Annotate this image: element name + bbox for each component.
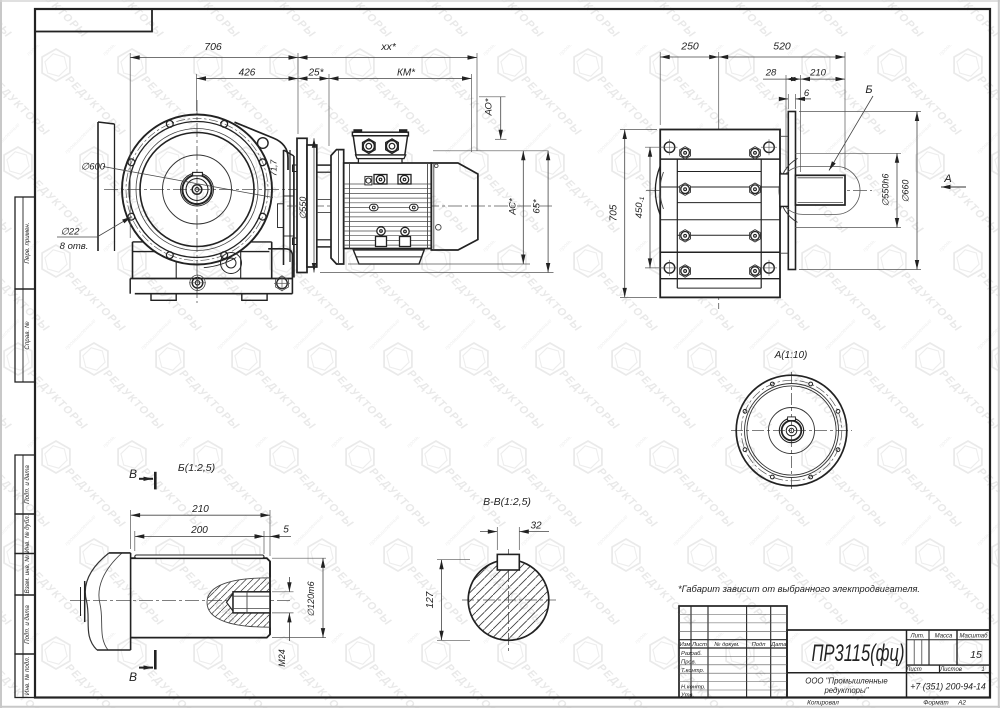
svg-text:Н.контр.: Н.контр.	[681, 685, 706, 691]
svg-text:В-В(1:2,5): В-В(1:2,5)	[483, 496, 531, 508]
svg-text:Формат: Формат	[923, 700, 949, 707]
svg-text:Перв. примен.: Перв. примен.	[24, 222, 31, 263]
svg-text:Инв. № дубл.: Инв. № дубл.	[24, 515, 31, 553]
svg-text:Изм: Изм	[680, 642, 691, 648]
svg-text:Взам. инв. №: Взам. инв. №	[24, 555, 31, 594]
svg-text:Лист: Лист	[691, 642, 707, 648]
svg-text:25*: 25*	[307, 68, 324, 79]
svg-text:Б(1:2,5): Б(1:2,5)	[178, 462, 215, 474]
svg-text:Лит.: Лит.	[909, 634, 924, 640]
svg-text:∅600: ∅600	[81, 162, 106, 173]
svg-text:Б: Б	[865, 84, 872, 96]
svg-text:∅550: ∅550	[298, 197, 308, 220]
svg-text:+7 (351) 200-94-14: +7 (351) 200-94-14	[910, 682, 986, 692]
svg-text:*Габарит зависит от выбранного: *Габарит зависит от выбранного электродв…	[678, 584, 920, 594]
svg-text:Инв. № подл.: Инв. № подл.	[24, 657, 31, 695]
svg-text:КМ*: КМ*	[397, 68, 416, 79]
svg-text:∅120m6: ∅120m6	[306, 581, 316, 616]
svg-text:xx*: xx*	[380, 41, 397, 53]
svg-text:∅22: ∅22	[61, 227, 81, 238]
svg-text:В: В	[129, 467, 137, 481]
svg-text:706: 706	[204, 41, 222, 53]
svg-text:65*: 65*	[532, 199, 543, 214]
svg-text:705: 705	[609, 204, 620, 221]
svg-text:ПР3115(фц): ПР3115(фц)	[812, 640, 905, 667]
svg-text:Дата: Дата	[770, 642, 787, 648]
svg-text:А(1:10): А(1:10)	[774, 350, 808, 361]
svg-text:15: 15	[970, 649, 982, 661]
svg-text:32: 32	[530, 521, 542, 532]
svg-text:Пров.: Пров.	[681, 659, 696, 665]
svg-text:∅660: ∅660	[901, 180, 911, 203]
svg-text:1: 1	[981, 667, 984, 673]
svg-text:6: 6	[804, 88, 810, 99]
svg-text:Листов: Листов	[939, 667, 962, 673]
svg-text:Лист: Лист	[905, 667, 921, 673]
svg-text:Разраб.: Разраб.	[681, 651, 702, 657]
svg-text:Утв.: Утв.	[680, 692, 694, 698]
svg-text:5: 5	[283, 525, 289, 536]
svg-text:А2: А2	[957, 700, 966, 707]
svg-text:71,7: 71,7	[269, 159, 279, 176]
svg-text:М24: М24	[277, 649, 287, 667]
svg-text:210: 210	[809, 68, 827, 79]
svg-text:В: В	[129, 670, 137, 684]
svg-text:Справ. №: Справ. №	[24, 321, 31, 349]
svg-text:210: 210	[191, 504, 209, 515]
svg-text:АО*: АО*	[484, 98, 495, 116]
svg-text:Масса: Масса	[935, 634, 953, 640]
svg-text:520: 520	[773, 41, 791, 53]
svg-text:28: 28	[765, 68, 777, 79]
svg-text:426: 426	[239, 68, 256, 79]
svg-text:редукторы": редукторы"	[823, 686, 869, 695]
svg-text:АС*: АС*	[508, 198, 519, 216]
svg-text:250: 250	[680, 41, 699, 53]
svg-text:Т.контр.: Т.контр.	[681, 668, 704, 674]
svg-text:Подп. и дата: Подп. и дата	[24, 605, 31, 644]
svg-text:А: А	[943, 173, 951, 185]
svg-text:8 отв.: 8 отв.	[60, 241, 89, 252]
svg-text:Масштаб: Масштаб	[959, 634, 988, 640]
svg-text:Подп: Подп	[752, 642, 767, 648]
svg-text:200: 200	[190, 525, 208, 536]
svg-text:№ докум.: № докум.	[714, 642, 740, 648]
svg-text:∅550h6: ∅550h6	[881, 174, 891, 207]
svg-text:127: 127	[425, 591, 436, 608]
svg-text:Подп. и дата: Подп. и дата	[24, 465, 31, 504]
svg-text:ООО "Промышленные: ООО "Промышленные	[805, 677, 888, 686]
svg-text:Копировал: Копировал	[807, 700, 839, 707]
